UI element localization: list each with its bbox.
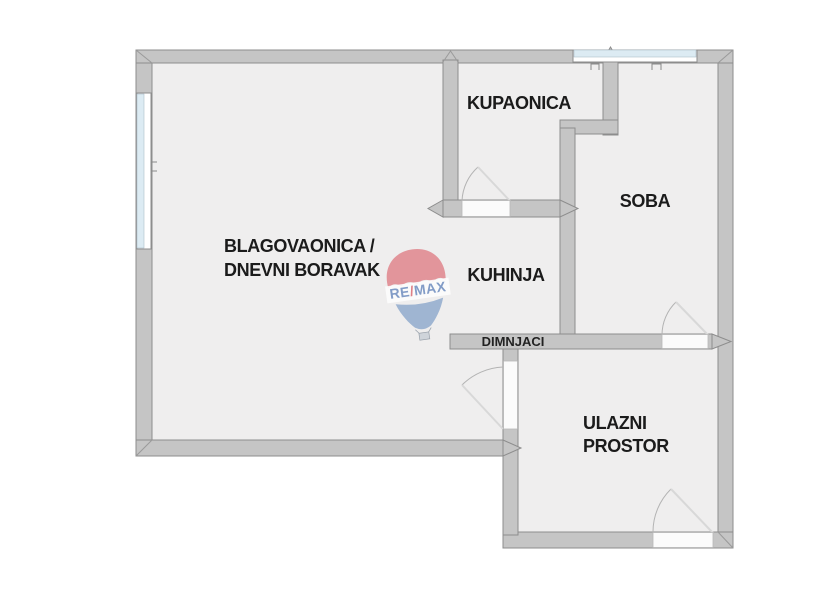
wall-right — [718, 50, 733, 548]
window-top-glass — [574, 50, 696, 57]
window-left-glass — [137, 94, 144, 248]
wall-bathroom-left — [443, 60, 458, 217]
door-entrance-slab — [653, 533, 713, 548]
room-label-kupaonica: KUPAONICA — [467, 93, 571, 113]
wall-kitchen-right — [560, 128, 575, 343]
room-label-blagovaonica-line1: BLAGOVAONICA / — [224, 236, 375, 256]
room-label-blagovaonica-line2: DNEVNI BORAVAK — [224, 260, 380, 280]
floorplan-canvas: RE/MAX BLAGOVAONICA / DNEVNI BORAVAK KUP… — [0, 0, 840, 589]
door-kupaonica-slab — [462, 201, 510, 217]
wall-living-bottom — [136, 440, 503, 456]
room-label-kuhinja: KUHINJA — [467, 265, 545, 285]
room-label-ulazni-line2: PROSTOR — [583, 436, 669, 456]
balloon-basket — [419, 332, 430, 340]
logo-re: RE — [389, 283, 411, 302]
floor-area — [136, 50, 733, 548]
room-label-dimnjaci: DIMNJACI — [482, 334, 545, 349]
door-soba-slab — [662, 335, 708, 349]
room-label-ulazni-line1: ULAZNI — [583, 413, 647, 433]
room-label-soba: SOBA — [620, 191, 671, 211]
floorplan-page: RE/MAX BLAGOVAONICA / DNEVNI BORAVAK KUP… — [0, 0, 840, 589]
door-living-slab — [504, 361, 518, 429]
